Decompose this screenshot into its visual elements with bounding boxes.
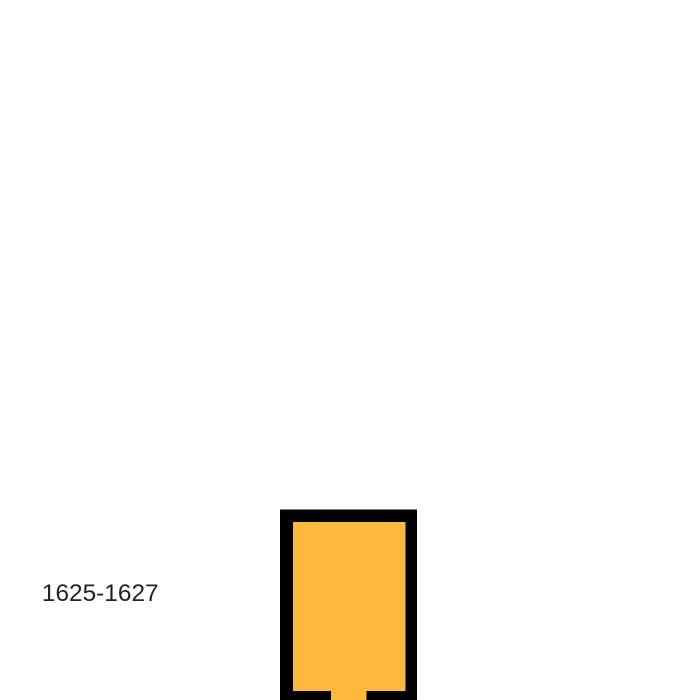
svg-text:1625-1627: 1625-1627	[42, 580, 159, 607]
